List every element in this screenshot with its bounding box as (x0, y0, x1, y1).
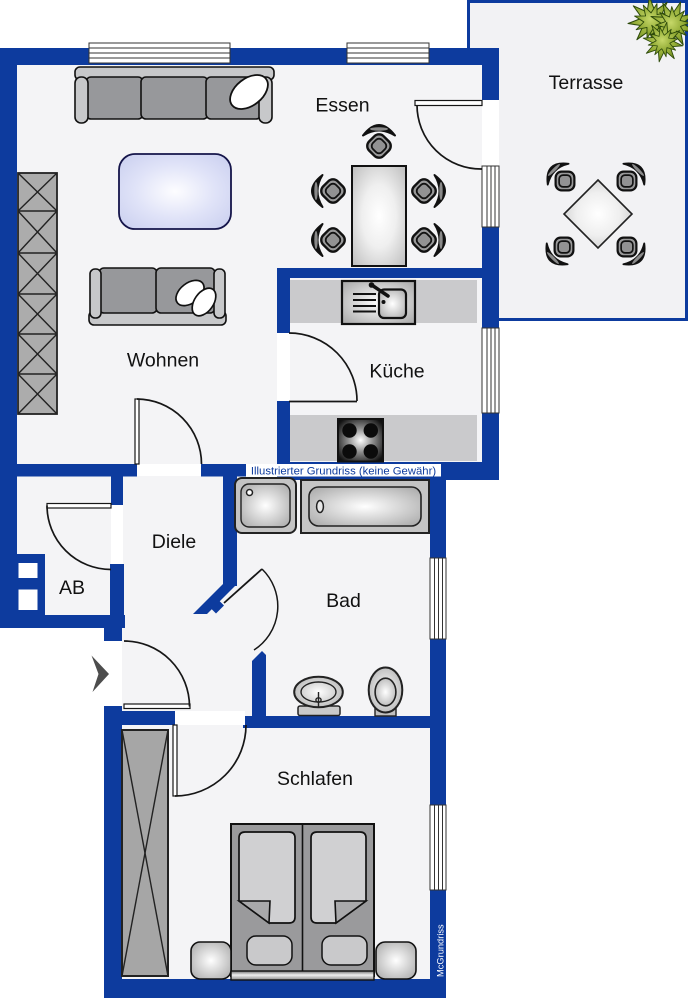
svg-text:Bad: Bad (326, 590, 361, 612)
svg-text:Wohnen: Wohnen (127, 350, 199, 372)
svg-text:AB: AB (59, 577, 85, 599)
svg-text:McGrundriss: McGrundriss (436, 924, 446, 977)
svg-text:Küche: Küche (369, 361, 424, 383)
svg-text:Terrasse: Terrasse (549, 72, 624, 94)
svg-text:Essen: Essen (315, 95, 369, 117)
svg-text:Diele: Diele (152, 531, 196, 553)
svg-text:Illustrierter Grundriss (keine: Illustrierter Grundriss (keine Gewähr) (251, 466, 436, 478)
svg-text:Schlafen: Schlafen (277, 768, 353, 790)
